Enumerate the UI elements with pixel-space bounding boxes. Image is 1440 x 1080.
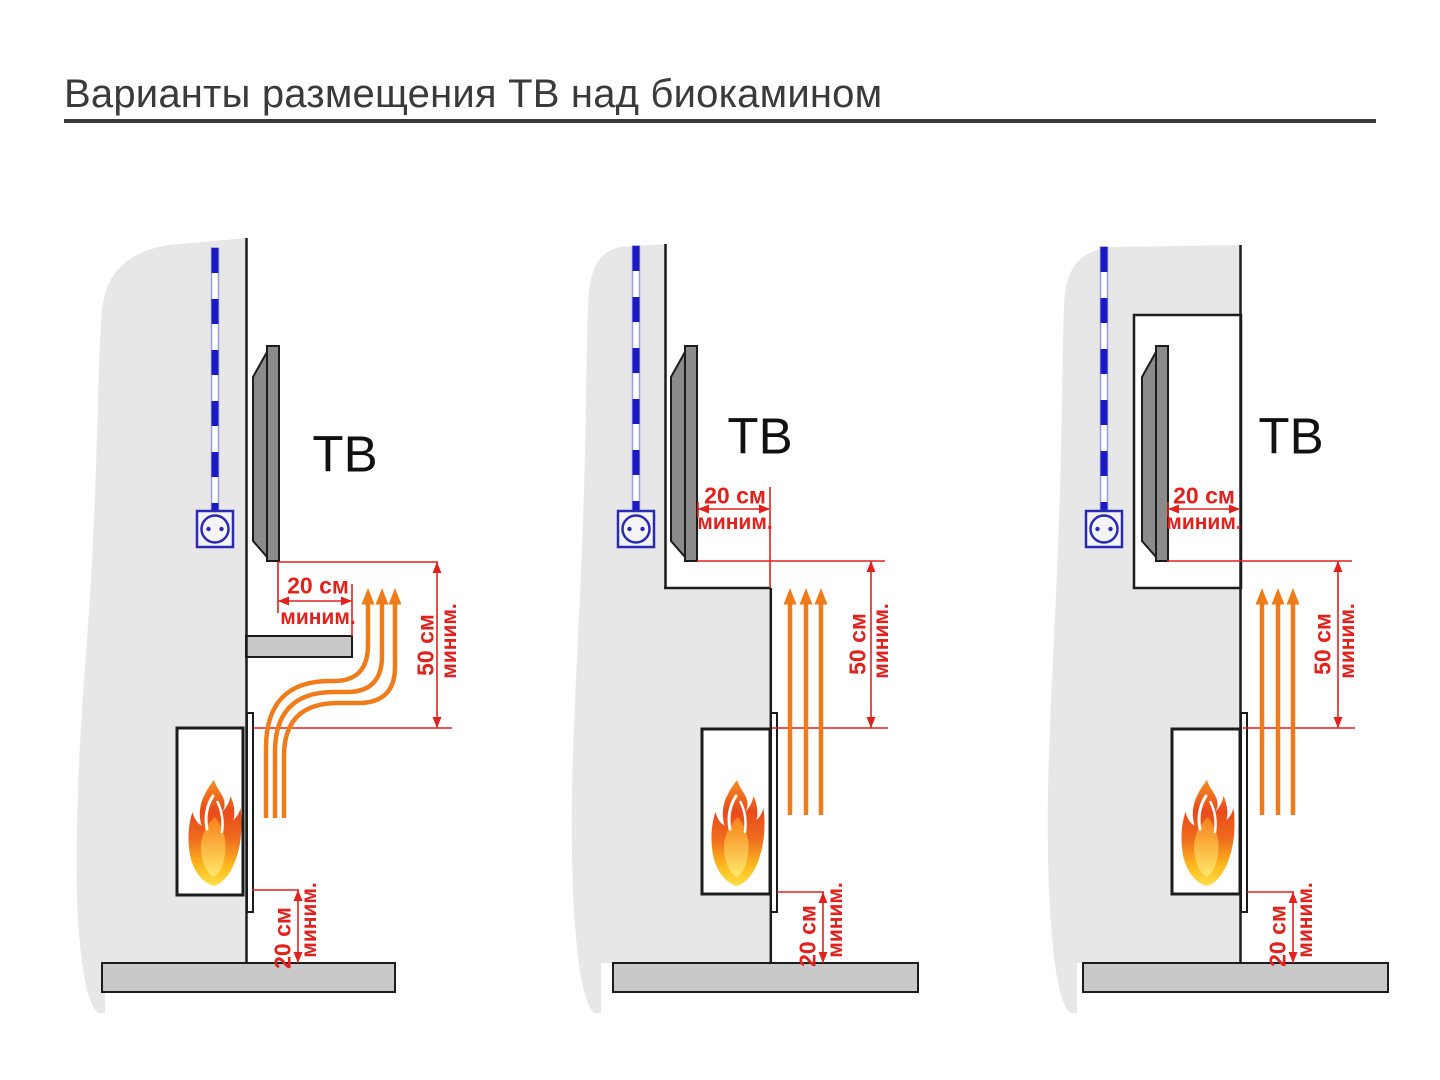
tv-side-view — [671, 346, 697, 561]
heat-arrowhead — [800, 588, 813, 605]
floor-slab — [613, 963, 918, 992]
diagram-artwork — [0, 0, 1440, 1080]
front-clearance-value: 20 см — [287, 573, 349, 600]
above-clearance-value: 50 см — [1310, 613, 1337, 675]
front-clearance-qualifier: миним. — [1166, 511, 1241, 535]
tv-side-view — [253, 346, 279, 561]
floor-slab — [1083, 963, 1388, 992]
tv-label: ТВ — [1258, 407, 1323, 466]
heat-arrowhead — [784, 588, 797, 605]
floor-clearance-qualifier: миним. — [1294, 882, 1318, 957]
tv-label: ТВ — [727, 407, 792, 466]
front-clearance-qualifier: миним. — [697, 511, 772, 535]
mantel-shelf — [246, 636, 352, 657]
fireplace-glass-front — [247, 713, 253, 912]
heat-arrows-icon — [266, 602, 395, 818]
floor-clearance-value: 20 см — [795, 905, 822, 967]
floor-clearance-value: 20 см — [1265, 905, 1292, 967]
front-clearance-value: 20 см — [704, 483, 766, 510]
heat-arrowhead — [362, 588, 375, 605]
power-outlet-icon — [1086, 511, 1122, 547]
floor-clearance-qualifier: миним. — [298, 882, 322, 957]
heat-arrows-icon — [790, 602, 821, 815]
above-clearance-qualifier: миним. — [870, 603, 894, 678]
floor-clearance-value: 20 см — [270, 907, 297, 969]
tv-side-view — [1142, 346, 1168, 561]
heat-arrowhead — [1256, 588, 1269, 605]
above-clearance-qualifier: миним. — [1336, 603, 1360, 678]
above-clearance-value: 50 см — [845, 613, 872, 675]
power-outlet-icon — [197, 511, 233, 547]
power-outlet-icon — [618, 511, 654, 547]
front-clearance-qualifier: миним. — [280, 606, 355, 630]
wall-cross-section — [572, 244, 772, 1013]
tv-label: ТВ — [312, 425, 377, 484]
floor-slab — [102, 963, 395, 992]
heat-arrowhead — [1272, 588, 1285, 605]
heat-arrowhead — [376, 588, 389, 605]
wall-cross-section — [77, 238, 248, 1013]
floor-clearance-qualifier: миним. — [824, 882, 848, 957]
tv-placement-diagram: Варианты размещения ТВ над биокамином — [0, 0, 1440, 1080]
above-clearance-value: 50 см — [413, 614, 440, 676]
variant-1-tv-over-shelf — [77, 238, 452, 1013]
heat-arrowhead — [1287, 588, 1300, 605]
fireplace-glass-front — [1241, 713, 1247, 912]
above-clearance-qualifier: миним. — [438, 603, 462, 678]
front-clearance-value: 20 см — [1173, 483, 1235, 510]
heat-arrows-icon — [1262, 602, 1293, 815]
fireplace-glass-front — [771, 713, 777, 912]
heat-arrowhead — [815, 588, 828, 605]
heat-arrowhead — [389, 588, 402, 605]
